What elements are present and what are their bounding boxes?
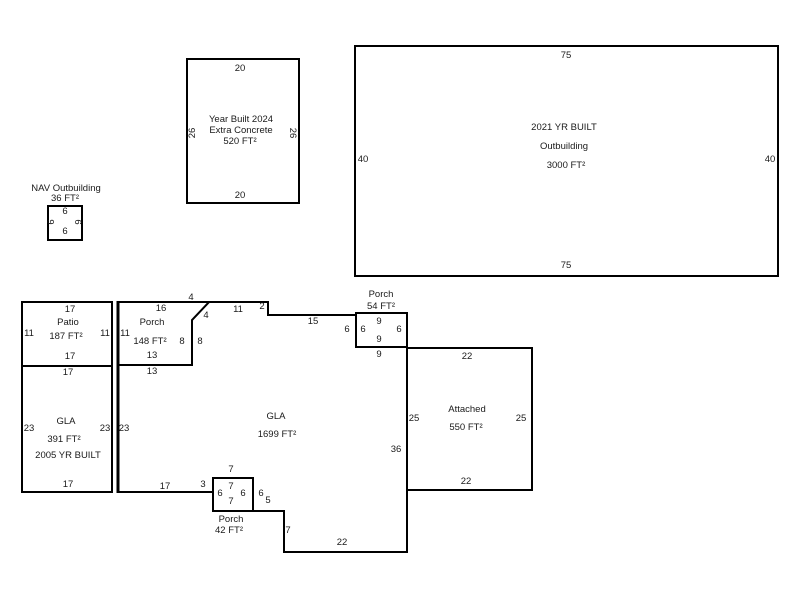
- gla-391-shape[interactable]: [22, 366, 112, 492]
- nav-dim-right: 6: [72, 219, 82, 224]
- porch148-dim-right-out: 8: [197, 337, 202, 347]
- concrete-title: Extra Concrete: [209, 126, 272, 136]
- attached-dim-top: 22: [462, 352, 473, 362]
- porch42-dim-top: 7: [228, 482, 233, 492]
- gla391-dim-top: 17: [63, 368, 74, 378]
- gla1699-dim-top3: 9: [376, 350, 381, 360]
- gla1699-dim-top-left: 13: [147, 367, 158, 377]
- gla1699-dim-jog: 7: [285, 526, 290, 536]
- concrete-area: 520 FT²: [223, 137, 256, 147]
- outbuilding-year-line: 2021 YR BUILT: [531, 123, 597, 133]
- outbuilding-dim-right: 40: [765, 155, 776, 165]
- porch148-dim-right-in: 8: [179, 337, 184, 347]
- attached-dim-right: 25: [516, 414, 527, 424]
- gla1699-dim-top1: 11: [233, 305, 243, 315]
- concrete-dim-left: 26: [188, 128, 198, 139]
- nav-dim-left: 6: [47, 219, 57, 224]
- porch148-dim-diag-bottom: 4: [203, 311, 208, 321]
- porch42-dim-left: 6: [217, 489, 222, 499]
- outbuilding-area: 3000 FT²: [547, 161, 586, 171]
- attached-shape[interactable]: [407, 348, 532, 490]
- porch148-dim-top: 16: [156, 304, 167, 314]
- porch54-dim-bottom: 9: [376, 335, 381, 345]
- gla391-dim-left: 23: [24, 424, 35, 434]
- gla1699-dim-left: 23: [119, 424, 130, 434]
- nav-dim-top: 6: [62, 207, 67, 217]
- concrete-dim-top: 20: [235, 64, 246, 74]
- patio-area: 187 FT²: [49, 332, 82, 342]
- patio-dim-left: 11: [24, 329, 34, 339]
- attached-dim-left: 25: [409, 414, 420, 424]
- porch148-area: 148 FT²: [133, 337, 166, 347]
- gla1699-dim-bottom3: 22: [337, 538, 348, 548]
- gla1699-dim-bottom2: 3: [200, 480, 205, 490]
- porch148-title: Porch: [140, 318, 165, 328]
- porch42-dim-above: 7: [228, 465, 233, 475]
- gla1699-area: 1699 FT²: [258, 430, 297, 440]
- patio-dim-bottom: 17: [65, 352, 76, 362]
- gla391-area: 391 FT²: [47, 435, 80, 445]
- gla391-title: GLA: [56, 417, 75, 427]
- porch42-title: Porch: [219, 515, 244, 525]
- porch42-dim-right: 6: [240, 489, 245, 499]
- concrete-dim-right: 26: [287, 128, 297, 139]
- concrete-dim-bottom: 20: [235, 191, 246, 201]
- gla1699-dim-step2: 6: [344, 325, 349, 335]
- porch54-area: 54 FT²: [367, 302, 395, 312]
- gla1699-dim-jog-top: 5: [265, 496, 270, 506]
- nav-area: 36 FT²: [51, 194, 79, 204]
- gla391-dim-bottom: 17: [63, 480, 74, 490]
- porch54-dim-top: 9: [376, 317, 381, 327]
- patio-dim-right: 11: [100, 329, 110, 339]
- patio-dim-top: 17: [65, 305, 76, 315]
- attached-title: Attached: [448, 405, 486, 415]
- porch148-dim-bottom: 13: [147, 351, 158, 361]
- attached-area: 550 FT²: [449, 423, 482, 433]
- patio-title: Patio: [57, 318, 79, 328]
- sketch-linework: [0, 0, 800, 600]
- gla1699-dim-bottom1: 17: [160, 482, 171, 492]
- porch148-dim-diag-top: 4: [188, 293, 193, 303]
- concrete-year-line: Year Built 2024: [209, 115, 273, 125]
- outbuilding-title: Outbuilding: [540, 142, 588, 152]
- outbuilding-dim-left: 40: [358, 155, 369, 165]
- porch54-title: Porch: [369, 290, 394, 300]
- outbuilding-dim-top: 75: [561, 51, 572, 61]
- porch148-dim-left: 11: [120, 329, 130, 339]
- nav-dim-bottom: 6: [62, 227, 67, 237]
- gla391-year: 2005 YR BUILT: [35, 451, 101, 461]
- gla1699-dim-top2: 15: [308, 317, 319, 327]
- porch54-dim-left: 6: [360, 325, 365, 335]
- outbuilding-dim-bottom: 75: [561, 261, 572, 271]
- gla1699-dim-step: 2: [259, 302, 264, 312]
- gla1699-title: GLA: [266, 412, 285, 422]
- porch54-dim-right: 6: [396, 325, 401, 335]
- porch42-dim-bottom: 7: [228, 497, 233, 507]
- gla1699-dim-porch-side: 6: [258, 489, 263, 499]
- porch42-area: 42 FT²: [215, 526, 243, 536]
- gla391-dim-right: 23: [100, 424, 111, 434]
- gla1699-dim-right: 36: [391, 445, 402, 455]
- attached-dim-bottom: 22: [461, 477, 472, 487]
- sketch-canvas[interactable]: NAV Outbuilding 36 FT² 6 6 6 6 20 Year B…: [0, 0, 800, 600]
